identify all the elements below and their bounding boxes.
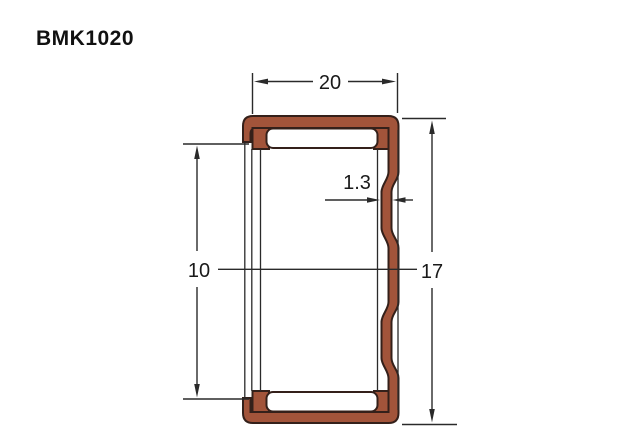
dim-inner-height: 10 bbox=[183, 144, 249, 399]
page-title: BMK1020 bbox=[36, 27, 134, 51]
dim-width: 20 bbox=[253, 72, 398, 114]
dim-inner-height-label: 10 bbox=[188, 260, 210, 282]
dim-outer-height-label: 17 bbox=[421, 261, 443, 283]
top-slot bbox=[267, 129, 378, 149]
dim-width-label: 20 bbox=[319, 72, 341, 94]
dim-wall-label: 1.3 bbox=[343, 172, 371, 194]
page: BMK1020 bbox=[0, 0, 640, 440]
profile-drawing: 20 1.3 10 17 bbox=[0, 0, 640, 440]
dim-wall-thickness: 1.3 bbox=[325, 172, 413, 203]
dim-outer-height: 17 bbox=[402, 119, 457, 425]
left-cover-lines bbox=[245, 142, 261, 398]
bottom-slot bbox=[267, 392, 378, 412]
